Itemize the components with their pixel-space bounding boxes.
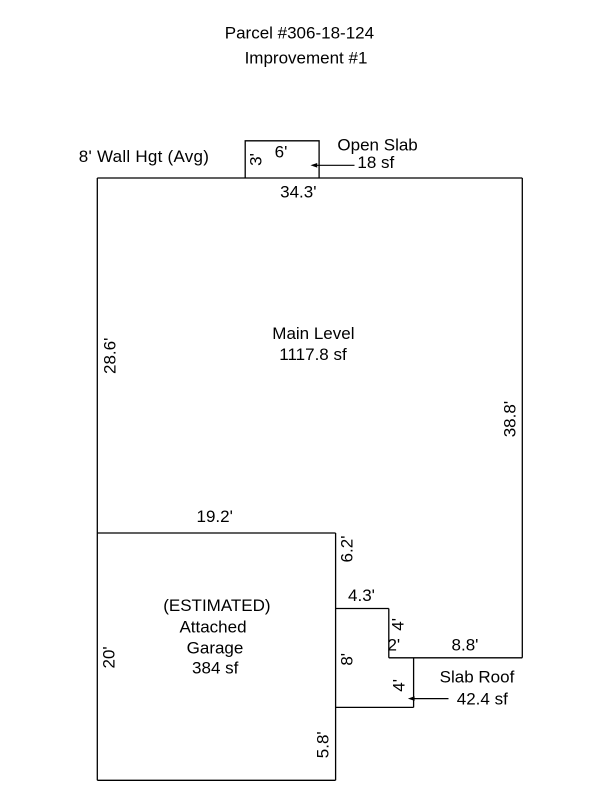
svg-text:384 sf: 384 sf — [192, 659, 239, 678]
svg-text:38.8': 38.8' — [500, 401, 519, 437]
svg-text:6.2': 6.2' — [338, 536, 357, 563]
svg-text:Garage: Garage — [187, 639, 244, 658]
svg-text:Improvement #1: Improvement #1 — [245, 48, 368, 67]
svg-text:4': 4' — [390, 679, 409, 692]
svg-text:8.8': 8.8' — [452, 636, 479, 655]
svg-text:Attached: Attached — [179, 618, 246, 637]
svg-text:4': 4' — [389, 618, 408, 631]
svg-text:Parcel #306-18-124: Parcel #306-18-124 — [225, 24, 374, 43]
svg-text:4.3': 4.3' — [348, 586, 375, 605]
svg-text:19.2': 19.2' — [197, 507, 233, 526]
svg-text:5.8': 5.8' — [314, 731, 333, 758]
svg-text:28.6': 28.6' — [100, 338, 119, 374]
svg-text:Slab Roof: Slab Roof — [440, 668, 515, 687]
svg-text:Main Level: Main Level — [272, 324, 354, 343]
svg-text:8': 8' — [337, 653, 356, 666]
svg-text:1117.8 sf: 1117.8 sf — [279, 345, 347, 364]
svg-text:(ESTIMATED): (ESTIMATED) — [163, 596, 270, 615]
svg-text:20': 20' — [99, 646, 118, 668]
svg-text:6': 6' — [275, 142, 288, 161]
svg-text:Open Slab: Open Slab — [337, 136, 417, 155]
svg-text:34.3': 34.3' — [280, 182, 316, 201]
svg-text:18 sf: 18 sf — [357, 153, 394, 172]
svg-text:42.4 sf: 42.4 sf — [457, 690, 508, 709]
svg-text:3': 3' — [247, 153, 266, 166]
svg-text:8' Wall Hgt (Avg): 8' Wall Hgt (Avg) — [79, 147, 209, 166]
